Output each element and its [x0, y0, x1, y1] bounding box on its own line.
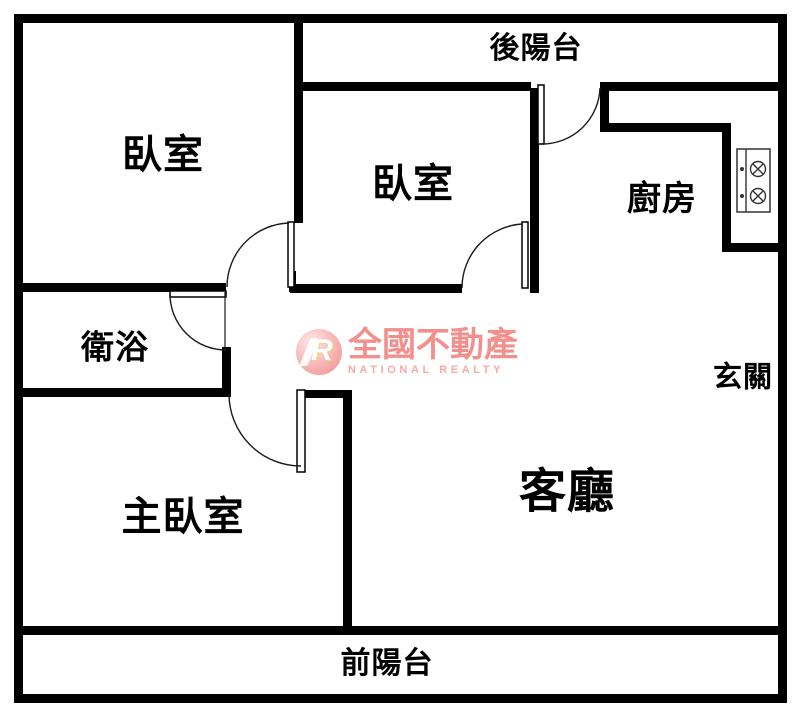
floor-plan: 臥室 臥室 後陽台 廚房 衛浴 玄關 主臥室 客廳 前陽台 R 全國不動產 NA… [0, 0, 800, 710]
bath-door-leaf [170, 291, 226, 297]
wall-backbalcony-inner-right [600, 82, 778, 91]
room-label-master-bedroom: 主臥室 [122, 497, 245, 537]
wall-kitchen-L-horizontal [600, 123, 731, 132]
realty-watermark: R 全國不動產 NATIONAL REALTY [296, 327, 516, 381]
room-label-entryway: 玄關 [713, 364, 773, 393]
master-door-leaf [297, 390, 305, 472]
room-label-bathroom: 衛浴 [81, 331, 149, 364]
bath-door-arc [170, 294, 226, 350]
wall-bed2-bottom [290, 284, 462, 293]
wall-kitchen-niche-left [722, 123, 731, 252]
wall-backbalcony-inner-left [303, 82, 531, 91]
backbalcony-door-leaf [538, 85, 544, 144]
wall-right [778, 14, 787, 703]
room-label-living-room: 客廳 [519, 468, 615, 515]
bed2-door-arc [462, 224, 523, 288]
room-label-bedroom1: 臥室 [122, 135, 204, 175]
room-label-front-balcony: 前陽台 [341, 649, 434, 679]
room-label-back-balcony: 後陽台 [490, 34, 583, 64]
bed1-door-leaf [288, 222, 294, 287]
wall-bath-bottom [23, 388, 227, 397]
backbalcony-door-arc [541, 88, 600, 144]
bed2-door-leaf [522, 222, 528, 288]
master-door-arc [229, 394, 301, 466]
wall-frontbalcony-inner [23, 626, 778, 635]
realty-logo-icon: R [296, 329, 342, 375]
bed1-door-arc [227, 223, 289, 287]
room-label-kitchen: 廚房 [627, 182, 697, 216]
stove-knob-1 [740, 167, 744, 171]
wall-bed1-right [294, 14, 303, 223]
wall-left [14, 14, 23, 703]
realty-brand-name: 全國不動產 [348, 327, 518, 363]
stove-knob-2 [740, 194, 744, 198]
room-label-bedroom2: 臥室 [372, 164, 454, 204]
wall-bath-right [222, 347, 231, 397]
wall-living-left [343, 390, 352, 635]
inner-walls [23, 14, 778, 635]
stove-icon [737, 149, 770, 212]
realty-watermark-text: 全國不動產 NATIONAL REALTY [348, 327, 518, 376]
realty-logo-letter: R [311, 336, 333, 366]
wall-bottom [14, 694, 787, 703]
wall-kitchen-niche-bottom [722, 243, 778, 252]
realty-brand-subtitle: NATIONAL REALTY [348, 364, 518, 376]
wall-top [14, 14, 787, 23]
